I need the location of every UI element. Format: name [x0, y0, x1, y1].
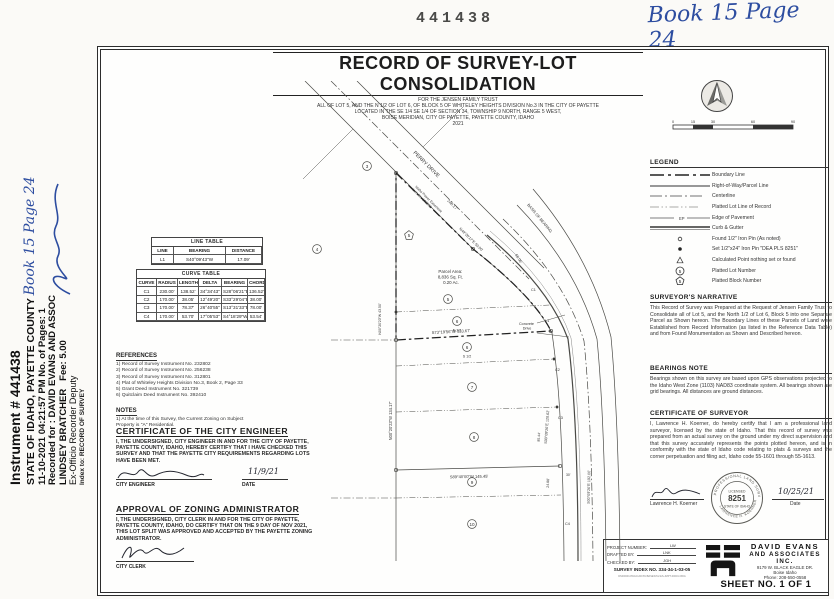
legend-item: Platted Lot Line of Record [650, 202, 828, 213]
table-cell: 12°49'20" [199, 296, 222, 304]
north-arrow-icon [696, 75, 738, 117]
road-centerline-bearing: S00°09'26"E 192.00' [587, 470, 592, 504]
legend-item: Found 1/2" Iron Pin (As noted) [650, 234, 828, 245]
lots-east-boundary [473, 249, 564, 561]
curve-table-title: CURVE TABLE [137, 270, 265, 279]
table-cell: 170.00' [157, 296, 178, 304]
legend-item: 5 Platted Block Number [650, 276, 828, 287]
table-cell: S13°31'33"E [222, 304, 248, 312]
bearings-body: Bearings shown on this survey are based … [650, 376, 832, 396]
table-cell: 78.00' [248, 304, 265, 312]
lot6-lot7-line [396, 359, 554, 366]
table-cell: C1 [137, 287, 157, 295]
legend-item: Right-of-Way/Parcel Line [650, 181, 828, 192]
table-cell: 170.00' [157, 304, 178, 312]
svg-text:0: 0 [672, 120, 674, 124]
surveyor-date-handwritten: 10/25/21 [778, 487, 814, 496]
legend-title: LEGEND [650, 159, 828, 168]
legend-item: Curb & Gutter [650, 223, 828, 234]
table-cell: 17.09' [226, 255, 262, 263]
edge-of-pavement-symbol: EP [650, 214, 712, 222]
concrete-drive-label: Concrete Drive [519, 322, 535, 330]
lot-number-symbol: 5 [650, 266, 712, 276]
table-cell: 38.00' [248, 296, 265, 304]
table-cell: C4 [137, 313, 157, 321]
road-centerline [503, 219, 593, 561]
recorder-stamp-block: Instrument # 441438 STATE OF IDAHO, PAYE… [8, 150, 96, 485]
svg-text:9: 9 [471, 480, 474, 485]
city-engineer-date-label: DATE [242, 482, 255, 488]
table-cell: 78.37' [178, 304, 199, 312]
lot9-lot10-line [396, 495, 561, 498]
table-cell: 26°40'55" [199, 304, 222, 312]
bearings-title: BEARINGS NOTE [650, 365, 832, 374]
survey-map: PERRY DRIVE 248.17' N49°28'17"E 50.00' I… [301, 81, 651, 566]
table-cell: S28°06'21"E [222, 287, 248, 295]
svg-text:5: 5 [679, 268, 682, 273]
table-cell: S40°09'43"W [174, 255, 226, 263]
deputy-signature [44, 178, 78, 298]
lot7-lot8-line [396, 407, 557, 412]
curb-gutter-line [487, 235, 578, 561]
platted-lot-line-symbol [650, 203, 712, 211]
svg-text:5: 5 [408, 233, 411, 238]
firm-info: DAVID EVANS AND ASSOCIATES INC. 9179 W. … [744, 543, 826, 581]
legend-item: EP Edge of Pavement [650, 212, 828, 223]
table-cell: 136.52' [248, 287, 265, 295]
certificate-of-surveyor: CERTIFICATE OF SURVEYOR I, Lawrence H. K… [650, 410, 832, 527]
legend-item: Centerline [650, 191, 828, 202]
svg-text:10: 10 [469, 522, 475, 527]
svg-text:248.17': 248.17' [446, 198, 459, 211]
block-south-line [396, 466, 560, 470]
cert-surveyor-title: CERTIFICATE OF SURVEYOR [650, 410, 832, 419]
legend: LEGEND Boundary Line Right-of-Way/Parcel… [650, 159, 828, 287]
scanned-survey-page: 441438 Book 15 Page 24 Instrument # 4414… [0, 0, 834, 599]
references: REFERENCES 1) Record of Survey Instrumen… [116, 344, 306, 400]
table-cell: 38.05' [178, 296, 199, 304]
legend-item: 5 Platted Lot Number [650, 265, 828, 276]
table-cell: 17°05'53" [199, 313, 222, 321]
scale-bar: 0 15 30 60 90 [670, 117, 796, 135]
svg-text:30': 30' [566, 473, 571, 477]
svg-text:LICENSED: LICENSED [729, 489, 747, 493]
surveyors-narrative: SURVEYOR'S NARRATIVE This Record of Surv… [650, 294, 832, 338]
south-line-bearing: S89°40'00"W 145.45' [450, 474, 489, 480]
svg-text:STATE OF IDAHO: STATE OF IDAHO [724, 504, 751, 508]
boundary-line-symbol [650, 171, 712, 179]
table-cell: 170.00' [157, 313, 178, 321]
legend-item: Boundary Line [650, 170, 828, 181]
svg-text:6: 6 [456, 319, 459, 324]
surveyor-date-label: Date [790, 501, 801, 507]
survey-index-number: SURVEY INDEX NO. 334-34-1-03-05 [604, 567, 700, 572]
cert-surveyor-body: I, Lawrence H. Koerner, do hereby certif… [650, 421, 832, 461]
dea-logo [704, 544, 742, 578]
svg-text:8: 8 [473, 435, 476, 440]
city-engineer-label: CITY ENGINEER [116, 482, 155, 488]
centerline-symbol [650, 192, 712, 200]
basis-of-bearing: BASIS OF BEARING [526, 202, 553, 233]
svg-text:L1: L1 [545, 319, 549, 323]
legend-item: Set 1/2"x24" Iron Pin "DEA PLS 8251" [650, 244, 828, 255]
table-cell: S4°18'29"W [222, 313, 248, 321]
approval-zoning-administrator: APPROVAL OF ZONING ADMINISTRATOR I, THE … [116, 499, 316, 572]
svg-text:60: 60 [751, 120, 755, 124]
row-parcel-line-symbol [650, 182, 712, 190]
svg-text:3: 3 [366, 164, 369, 169]
edge-of-pavement-line [517, 205, 606, 561]
set-pin-symbol [650, 245, 712, 253]
street-name: PERRY DRIVE [412, 150, 441, 179]
parcel-area-label: Parcel Area: 8,836 Sq. Ft. 0.20 Ac. [438, 269, 464, 285]
table-cell: 138.52' [178, 287, 199, 295]
svg-text:N 1/2: N 1/2 [453, 329, 462, 333]
table-cell: 53.54' [248, 313, 265, 321]
svg-text:6: 6 [466, 345, 469, 350]
easement-label: Idaho Power Easement Inst. No. 168822 [411, 185, 443, 217]
surveyor-printed-name: Lawrence H. Koerner [650, 501, 697, 507]
city-clerk-label: CITY CLERK [116, 564, 146, 570]
city-engineer-body: I, THE UNDERSIGNED, CITY ENGINEER IN AND… [116, 439, 316, 464]
svg-text:C2: C2 [555, 368, 560, 372]
perry-centerline [331, 81, 529, 279]
road-east-row-line [533, 189, 620, 561]
notes-title: NOTES [116, 408, 137, 416]
legend-item: Calculated Point nothing set or found [650, 255, 828, 266]
calculated-point-symbol [650, 256, 712, 264]
found-pin-symbol [650, 235, 712, 243]
svg-text:65.06': 65.06' [514, 253, 523, 264]
certificate-city-engineer: CERTIFICATE OF THE CITY ENGINEER I, THE … [116, 421, 316, 490]
svg-text:85.44': 85.44' [537, 432, 542, 442]
svg-text:S 1/2: S 1/2 [463, 355, 471, 359]
table-cell: S33°29'04"E [222, 296, 248, 304]
city-engineer-title: CERTIFICATE OF THE CITY ENGINEER [116, 426, 288, 437]
zoning-title: APPROVAL OF ZONING ADMINISTRATOR [116, 504, 299, 515]
line-table: LINE TABLE LINE BEARING DISTANCE L1 S40°… [151, 237, 263, 265]
line-table-title: LINE TABLE [152, 238, 262, 247]
curve-table: CURVE TABLE CURVE RADIUS LENGTH DELTA BE… [136, 269, 266, 322]
city-clerk-signature [118, 542, 188, 562]
table-cell: 34°34'43" [199, 287, 222, 295]
zoning-body: I, THE UNDERSIGNED, CITY CLERK IN AND FO… [116, 517, 316, 542]
svg-text:4: 4 [316, 247, 319, 252]
recorder-state-line: STATE OF IDAHO, PAYETTE COUNTY Book 15 P… [23, 150, 38, 485]
firm-name-1: DAVID EVANS [744, 543, 826, 551]
bearings-note: BEARINGS NOTE Bearings shown on this sur… [650, 365, 832, 396]
recorder-instrument: Instrument # 441438 [8, 150, 23, 485]
svg-text:90: 90 [791, 120, 795, 124]
block-number-symbol: 5 [650, 276, 712, 286]
survey-sheet: RECORD OF SURVEY-LOT CONSOLIDATION FOR T… [97, 46, 829, 596]
west-line-bearing: N00°20'23"W 134.17' [388, 401, 393, 440]
sheet-number: SHEET NO. 1 OF 1 [704, 579, 828, 590]
surveyor-seal: PROFESSIONAL LAND SURVEYOR LAWRENCE H. K… [708, 469, 766, 527]
narrative-body: This Record of Survey was Prepared at th… [650, 305, 832, 338]
table-cell: C2 [137, 296, 157, 304]
perry-north-row-line [357, 81, 544, 268]
split-line-bearing: S73°19'56"W 133.67' [432, 328, 471, 335]
svg-text:15: 15 [691, 120, 695, 124]
svg-text:5: 5 [447, 297, 450, 302]
svg-text:C1: C1 [531, 288, 536, 292]
firm-name-2: AND ASSOCIATES INC. [744, 551, 826, 565]
east-line-bearing: S00°09'26"E 120.62' [544, 410, 550, 444]
svg-text:C4: C4 [565, 522, 570, 526]
svg-text:5: 5 [679, 279, 682, 284]
svg-text:C3: C3 [558, 416, 563, 420]
svg-text:8251: 8251 [728, 494, 746, 503]
svg-text:N00°20'23"W 43.50': N00°20'23"W 43.50' [378, 303, 382, 335]
curb-gutter-symbol [650, 224, 712, 232]
project-number-value: LW [650, 543, 696, 549]
svg-text:7: 7 [471, 385, 474, 390]
svg-text:EP: EP [679, 216, 685, 221]
file-path: DS00000-DWG\CAD\SV\BASES\SV-ES-JMPT-0000… [614, 574, 691, 577]
svg-text:30: 30 [711, 120, 715, 124]
narrative-title: SURVEYOR'S NARRATIVE [650, 294, 832, 303]
recorder-book-page-handwriting: Book 15 Page 24 [22, 176, 38, 295]
instrument-number-stamp: 441438 [416, 10, 494, 27]
table-cell: 53.70' [178, 313, 199, 321]
recorder-index-line: Index to: RECORD OF SURVEY [79, 150, 86, 485]
references-title: REFERENCES [116, 353, 157, 361]
table-cell: C3 [137, 304, 157, 312]
table-cell: 230.00' [157, 287, 178, 295]
city-engineer-date: 11/9/21 [248, 467, 279, 476]
table-cell: L1 [152, 255, 174, 263]
lot5-lot6-line [396, 305, 550, 312]
svg-text:24.88': 24.88' [546, 478, 550, 488]
